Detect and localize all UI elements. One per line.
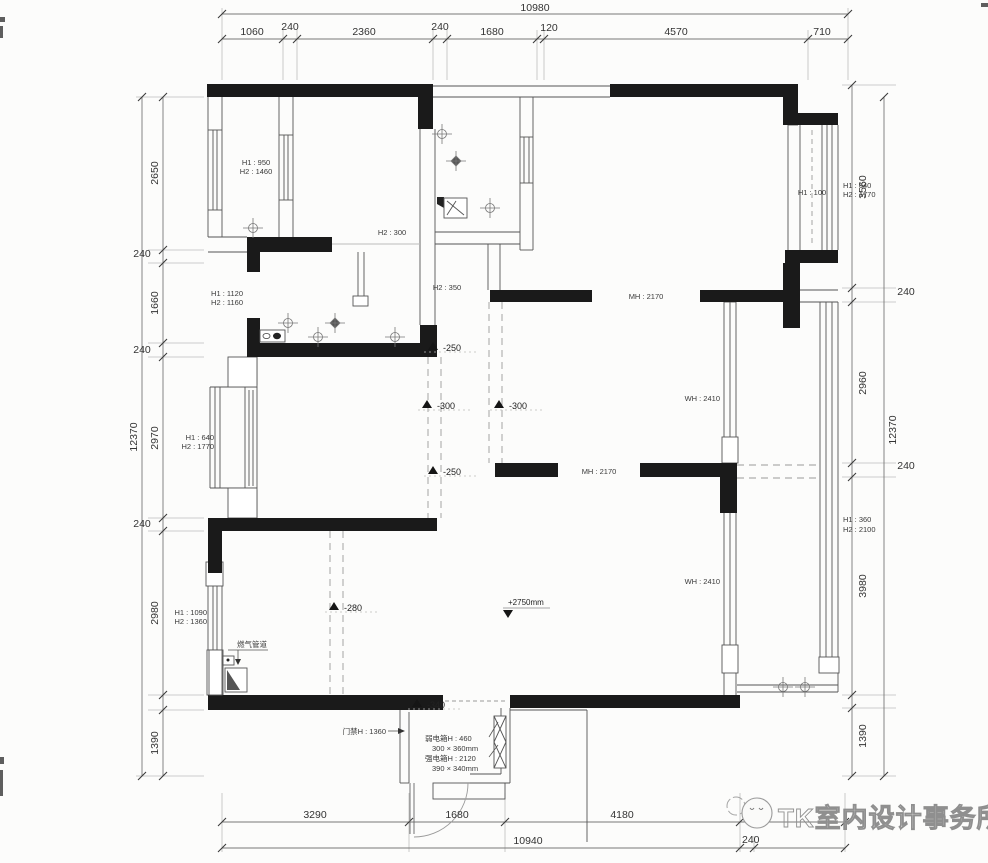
dim-left-overall: 12370 [128, 422, 140, 451]
dim-left-2980: 2980 [149, 601, 161, 625]
dim-top-240b: 240 [431, 21, 449, 33]
strong-current-box-label: 强电箱H : 2120 [425, 753, 476, 763]
weak-current-box-size: 300 × 360mm [432, 744, 478, 753]
window-height-label: WH : 2410 [685, 394, 720, 403]
window-height-label: H2 : 1160 [211, 298, 243, 307]
level-value: -340 [427, 700, 445, 710]
dim-bottom-4180: 4180 [610, 809, 634, 821]
dim-top-1060: 1060 [240, 26, 264, 38]
level-value: -250 [443, 467, 461, 477]
window-height-label: H2 : 1360 [174, 617, 207, 626]
strong-current-box-size: 390 × 340mm [432, 764, 478, 773]
level-value: -280 [344, 603, 362, 613]
structural-walls [207, 84, 838, 710]
opening-height-label: MH : 2170 [629, 292, 664, 301]
weak-current-box-label: 弱电箱H : 460 [425, 733, 472, 743]
bay-window-label: H1 : 640 [843, 181, 871, 190]
dim-left-2970: 2970 [149, 426, 161, 450]
dim-bottom-3290: 3290 [303, 809, 327, 821]
electric-box [494, 716, 506, 768]
dim-right-1390: 1390 [857, 724, 869, 748]
level-value: -250 [443, 343, 461, 353]
floor-plan-page: -250 -300 -300 -250 -280 -340 +2750mm 10… [0, 0, 988, 863]
gas-pipe-label: 燃气管道 [237, 639, 267, 649]
dimension-texts: 10980 240 240 120 1060 2360 1680 4570 71… [128, 2, 915, 847]
bay-window-label: H2 : 1770 [843, 190, 876, 199]
floor-plan-drawing: -250 -300 -300 -250 -280 -340 +2750mm 10… [0, 0, 988, 863]
bathroom-toilet-fixture [260, 330, 285, 342]
dim-bottom-1680: 1680 [445, 809, 469, 821]
window-height-label: H2 : 2100 [843, 525, 876, 534]
ceiling-height-value: +2750mm [508, 598, 544, 607]
fixtures [209, 197, 506, 768]
dim-bottom-240: 240 [742, 834, 760, 846]
dim-left-1660: 1660 [149, 291, 161, 315]
kitchen-sink-fixture [437, 197, 467, 218]
opening-height-label: MH : 2170 [582, 467, 617, 476]
dim-right-overall: 12370 [887, 415, 899, 444]
dim-top-4570: 4570 [664, 26, 688, 38]
level-value: -300 [509, 401, 527, 411]
dimension-ticks [138, 10, 888, 852]
dim-left-240b: 240 [133, 344, 151, 356]
gas-meter-fixture [209, 650, 247, 695]
dim-bottom-overall: 10940 [513, 835, 542, 847]
dim-left-2650: 2650 [149, 161, 161, 185]
door-access-label: 门禁H : 1360 [343, 727, 386, 736]
window-height-label: H2 : 1460 [240, 167, 273, 176]
bay-window-label: H1 : 100 [798, 188, 826, 197]
dim-left-240c: 240 [133, 518, 151, 530]
window-height-label: WH : 2410 [685, 577, 720, 586]
window-height-label: H1 : 950 [242, 158, 270, 167]
logo-text: TK室内设计事务所 [778, 803, 988, 833]
dim-top-120: 120 [540, 22, 558, 34]
dim-right-240b: 240 [897, 460, 915, 472]
dim-right-3980: 3980 [857, 574, 869, 598]
dim-top-1680: 1680 [480, 26, 504, 38]
logo-mark-icon [742, 798, 772, 828]
opening-height-label: H2 : 350 [433, 283, 461, 292]
extension-lines [136, 8, 896, 852]
logo: TK室内设计事务所 [727, 797, 988, 833]
dim-left-240a: 240 [133, 248, 151, 260]
window-height-label: H1 : 360 [843, 515, 871, 524]
survey-markers [243, 124, 815, 697]
scan-artifacts [0, 3, 988, 796]
dim-right-2960: 2960 [857, 371, 869, 395]
level-value: -300 [437, 401, 455, 411]
window-height-label: H1 : 1120 [211, 289, 243, 298]
bay-window-label: H1 : 640 [186, 433, 214, 442]
opening-height-label: H2 : 300 [378, 228, 406, 237]
dim-top-2360: 2360 [352, 26, 376, 38]
dim-right-240a: 240 [897, 286, 915, 298]
dim-top-overall: 10980 [520, 2, 549, 14]
dim-top-710: 710 [813, 26, 831, 38]
window-height-label: H1 : 1090 [174, 608, 207, 617]
dim-left-1390: 1390 [149, 731, 161, 755]
dim-top-240a: 240 [281, 21, 299, 33]
dashed-reference-lines [330, 130, 820, 701]
bay-window-label: H2 : 1770 [181, 442, 214, 451]
